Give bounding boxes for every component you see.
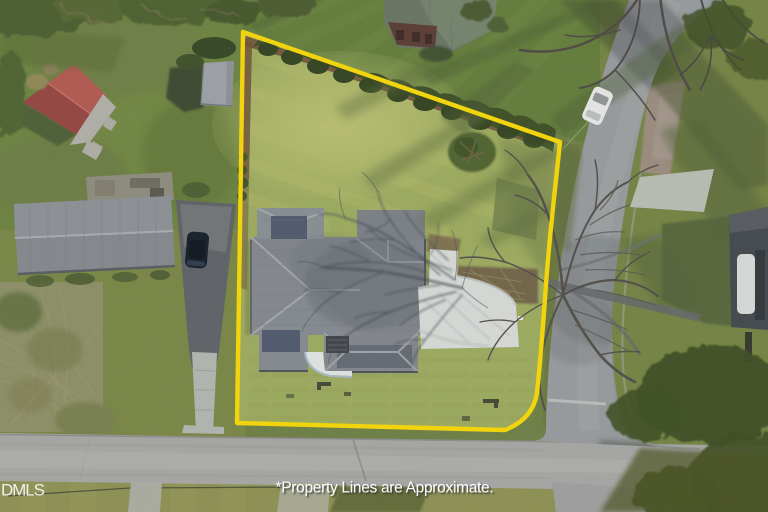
svg-text:DMLS: DMLS [1, 481, 45, 500]
svg-text:*Property Lines are Approximat: *Property Lines are Approximate. [276, 480, 494, 497]
